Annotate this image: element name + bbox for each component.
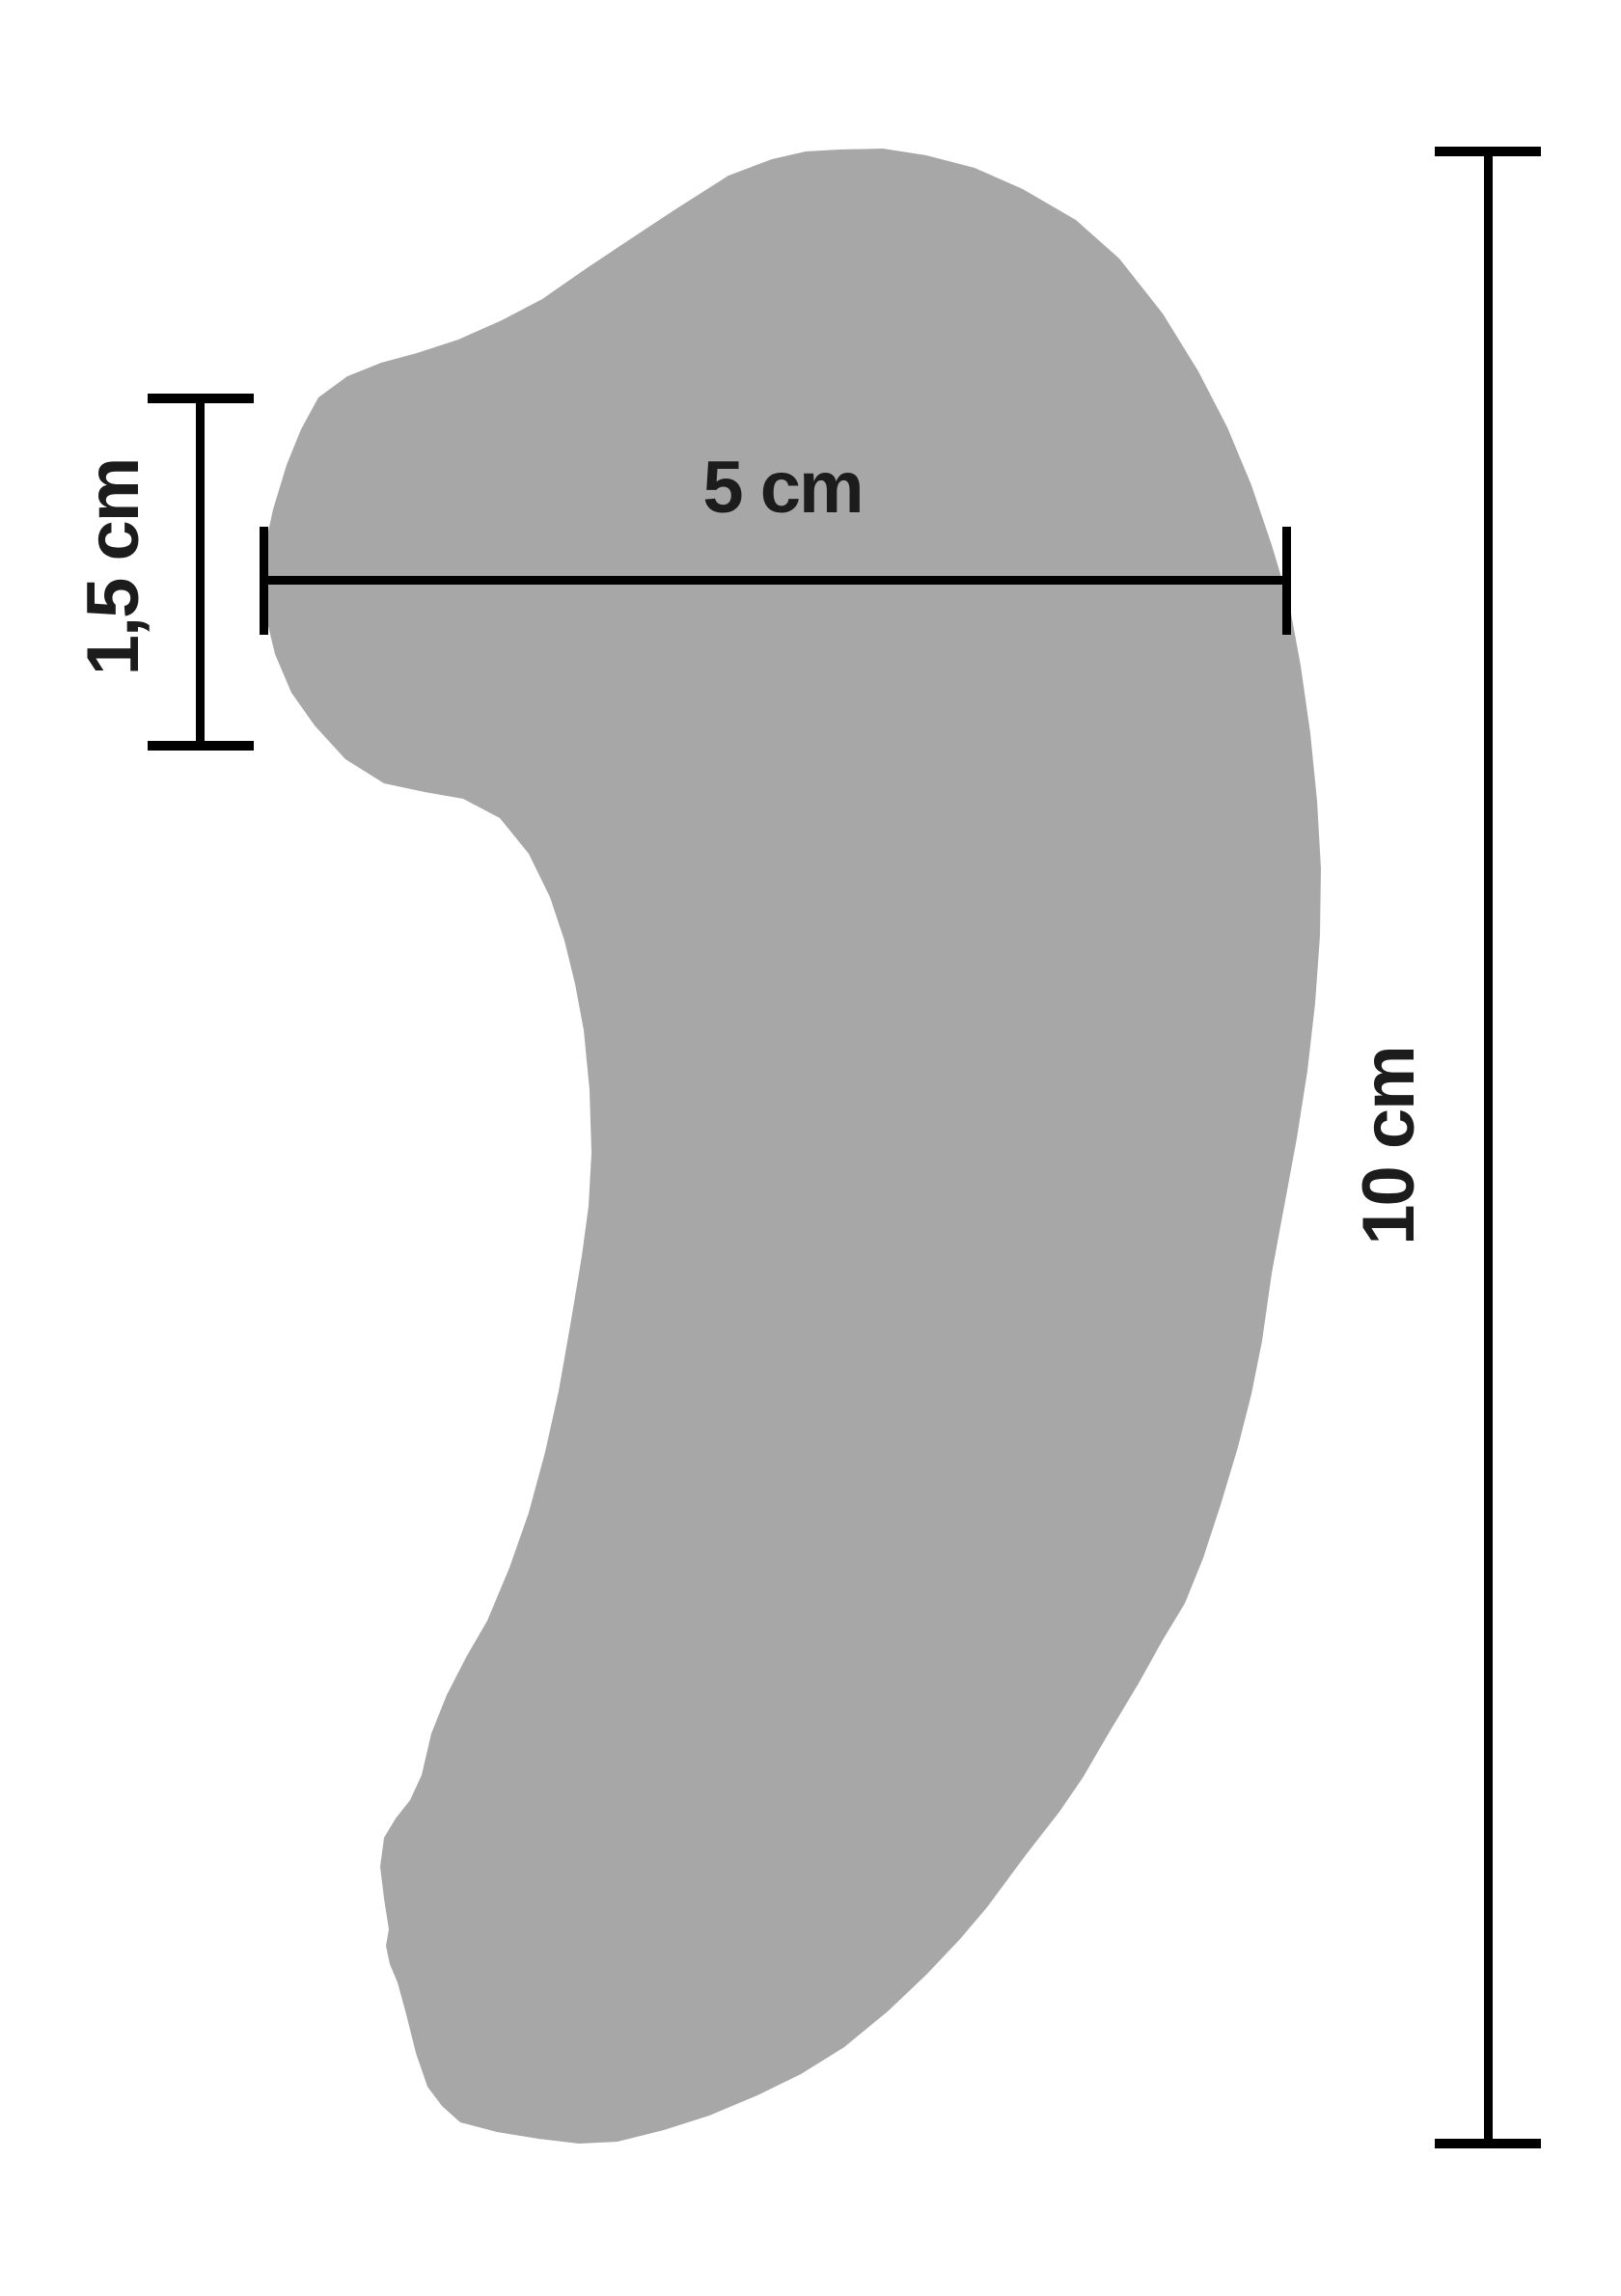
thickness-bottom-cap — [148, 741, 254, 751]
thickness-dimension-line — [148, 394, 254, 751]
height-measurement-label: 10 cm — [1353, 1047, 1426, 1245]
diagram-canvas: 5 cm 1,5 cm 10 cm — [0, 0, 1621, 2296]
height-stem — [1484, 151, 1493, 2144]
height-bottom-cap — [1435, 2139, 1541, 2148]
width-stem — [263, 576, 1286, 585]
width-measurement-label: 5 cm — [702, 451, 862, 525]
thickness-measurement-label: 1,5 cm — [77, 459, 151, 676]
width-right-tick — [1282, 527, 1291, 635]
height-dimension-line — [1435, 147, 1541, 2148]
thickness-stem — [196, 398, 205, 746]
